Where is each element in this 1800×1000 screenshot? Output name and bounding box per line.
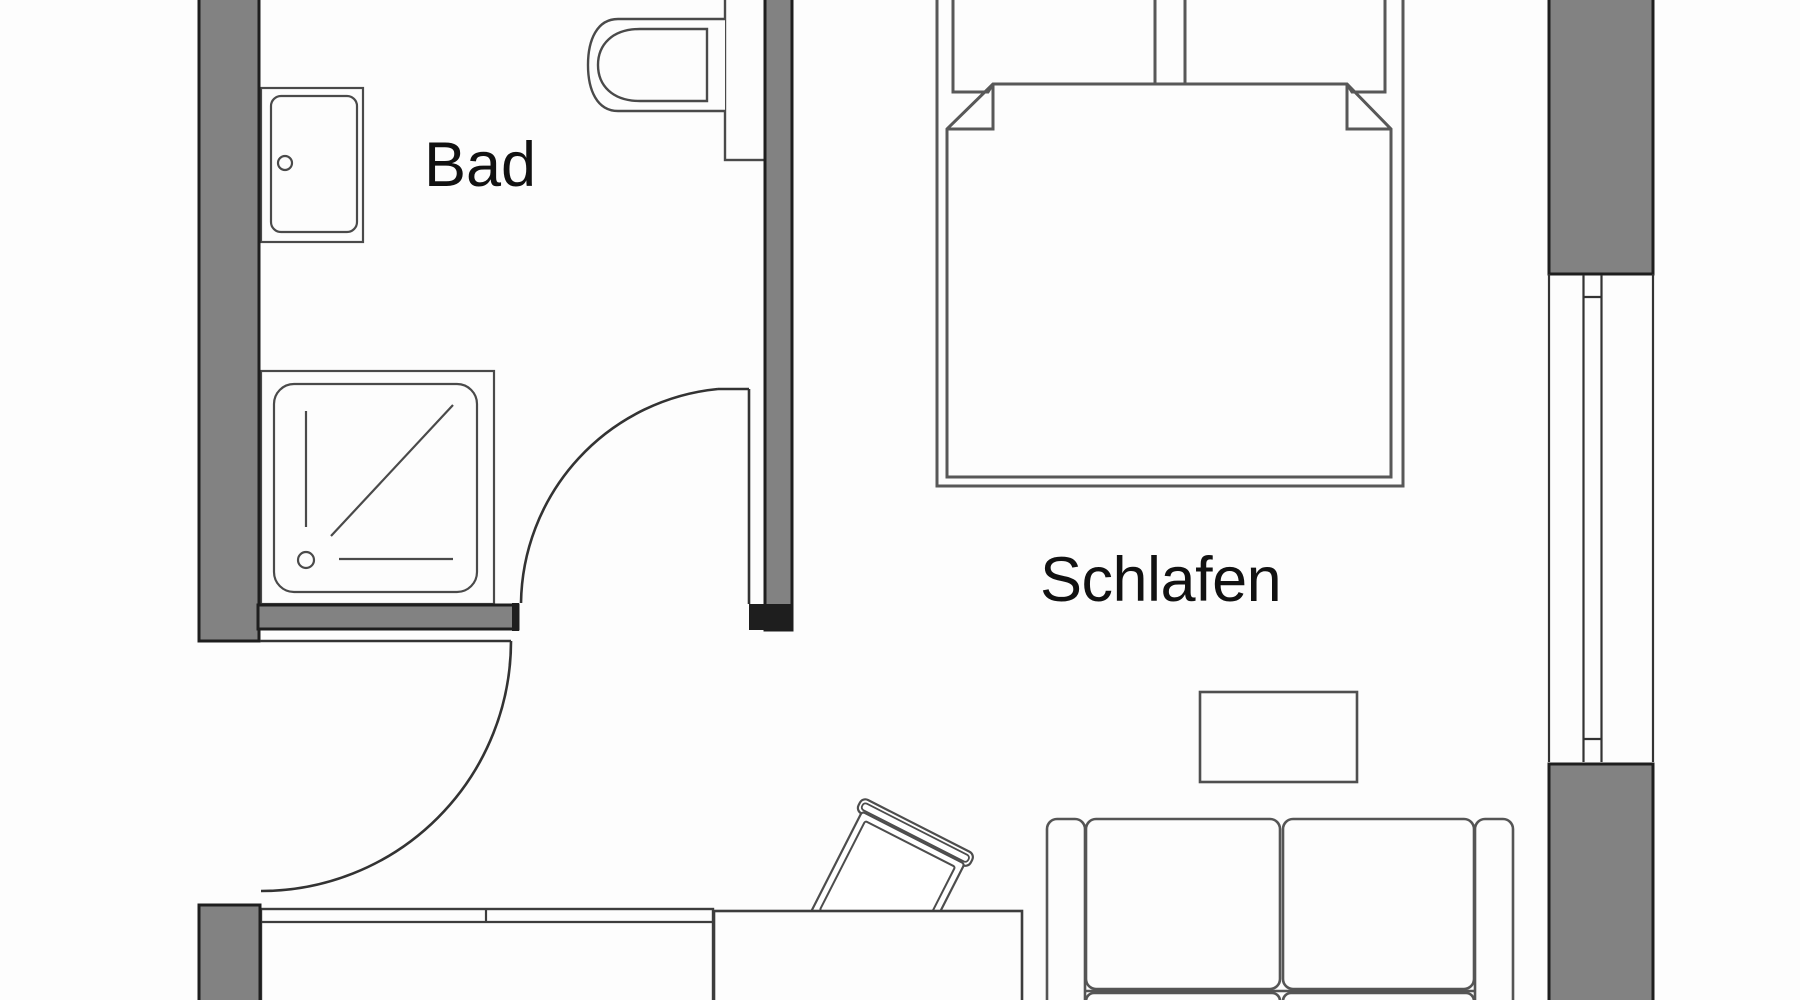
svg-text:Schlafen: Schlafen [1040, 545, 1281, 615]
svg-text:Bad: Bad [424, 130, 536, 200]
